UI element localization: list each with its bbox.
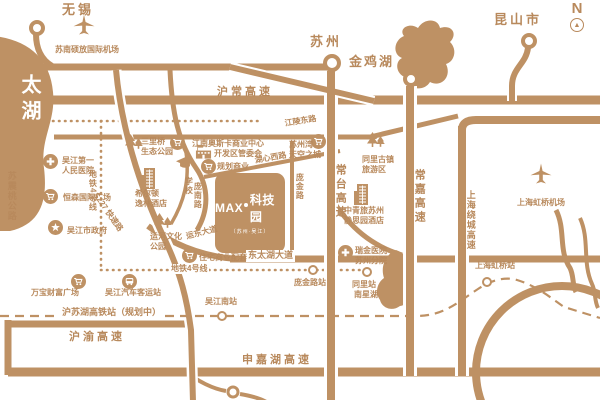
trees-icon [153,212,173,229]
poi-wujiang-bus-terminal-label: 吴江汽车客运站 [105,288,161,298]
station-shanghai-hongqiao-node [482,277,492,287]
river-shape [556,210,576,292]
lake-jinji-node [403,71,419,87]
max-tech-park-logo: MAX 科技园 [215,191,285,225]
max-tech-park-subtitle: （苏州·吴江） [231,228,270,235]
compass-north-label: N [570,0,584,17]
city-kunshan-label: 昆山市 [494,12,542,29]
hotel-icon [353,181,371,205]
max-logo-dot-icon [244,203,248,207]
station-tongli-node [362,267,372,277]
lake-taihu-label: 太湖 [16,74,42,126]
max-logo-suffix: 科技园 [250,191,285,225]
label-metro-line4-horizontal: 地铁4号线 [169,264,209,274]
poi-cyts-jingsiyuan-hotel-label: 中青旅苏州 静思园酒店 [344,206,384,227]
compass: N ▲ [570,0,584,32]
road-loop-east [240,394,268,400]
label-dongtaihu-ave: 东太湖大道 [246,250,295,262]
label-changjia-expwy: 常嘉高速 [412,169,426,225]
label-husuhu-rail: 沪苏湖高铁站（规划中） [60,307,163,319]
poi-sunan-shuofang-airport-label: 苏南硕放国际机场 [55,45,119,55]
cart-icon [201,159,216,174]
max-logo-text: MAX [215,201,243,215]
cart-icon [170,135,185,150]
poi-suzhou-bay-sky-city-label: 苏州湾 天空之城 [289,140,321,161]
city-suzhou-label: 苏州 [310,34,342,51]
city-suzhou-node [323,54,341,72]
poi-residential-commercial-support-label: 住宅商业配套 [199,253,247,263]
poi-development-zone-committee-label: 开发区管委会 [214,149,262,159]
label-pangnan-rd: 庞南路 [192,182,202,209]
poi-school-label: 学校 [183,177,193,195]
gov-building-icon [195,144,212,159]
location-map: MAX 科技园 （苏州·吴江） N ▲ 无锡苏州昆山市太湖金鸡湖南星湖沪常高速常… [0,0,600,400]
trees-icon [366,131,386,148]
poi-wujiang-city-government-label: 吴江市政府 [67,226,107,236]
poi-wanbao-fortune-plaza-label: 万宝财富广场 [31,288,79,298]
label-huchang-expwy: 沪常高速 [217,85,273,99]
poi-hengsen-international-plaza-label: 恒森国际广场 [63,193,111,203]
station-wujiangnan-node [217,311,227,321]
poi-shanghai-hongqiao-airport-label: 上海虹桥机场 [517,198,565,208]
bus-icon [122,274,137,289]
poi-tongli-ancient-town-label: 同里古镇 旅游区 [362,155,394,176]
city-kunshan-node [521,33,537,49]
lake-nanxing-label: 南星湖 [354,290,378,300]
poi-hilton-doubletree-hotel-label: 希尔顿 逸林酒店 [135,189,167,210]
poi-wujiang-first-peoples-hospital-label: 吴江第一 人民医院 [62,156,94,177]
label-suzhentao-hwy: 苏震桃公路 [5,171,17,221]
poi-ruijin-hospital-suzhou-branch-label: 瑞金医院 苏州分院 [355,246,387,267]
plane-icon [529,162,553,186]
road-jianglingdong [54,116,458,137]
station-pangjinlu-label: 庞金路站 [294,278,326,288]
hospital-icon [43,154,58,169]
star-icon [48,220,63,235]
compass-icon: ▲ [570,18,584,32]
loop-node [228,387,238,397]
plane-icon [72,13,96,37]
hotel-icon [140,165,158,189]
label-huyu-expwy: 沪渝高速 [69,330,125,344]
hospital-icon [338,245,353,260]
station-shanghai-hongqiao-label: 上海虹桥站 [475,261,515,271]
max-tech-park-block: MAX 科技园 （苏州·吴江） [215,173,285,253]
ring-road [476,286,600,400]
station-pangjinlu-node [308,265,318,275]
poi-sanliqiao-eco-park-label: 三里桥 生态公园 [141,137,173,158]
poi-canal-culture-park-label: 运河文化 公园 [150,232,182,253]
label-pangjin-rd: 庞金路 [294,173,304,200]
label-shenjiahu-expwy: 申嘉湖高速 [242,353,312,367]
cart-icon [43,189,58,204]
label-shanghai-ring-expwy: 上海绕城高速 [464,190,476,250]
station-tongli-label: 同里站 [352,280,376,290]
school-icon [176,157,194,170]
cart-icon [71,274,86,289]
cart-icon [182,248,197,263]
city-wuxi-node [29,20,45,36]
lake-jinji-label: 金鸡湖 [349,54,394,71]
station-wujiangnan-label: 吴江南站 [205,297,237,307]
poi-planned-commercial-label: 规划商业 [217,162,249,172]
